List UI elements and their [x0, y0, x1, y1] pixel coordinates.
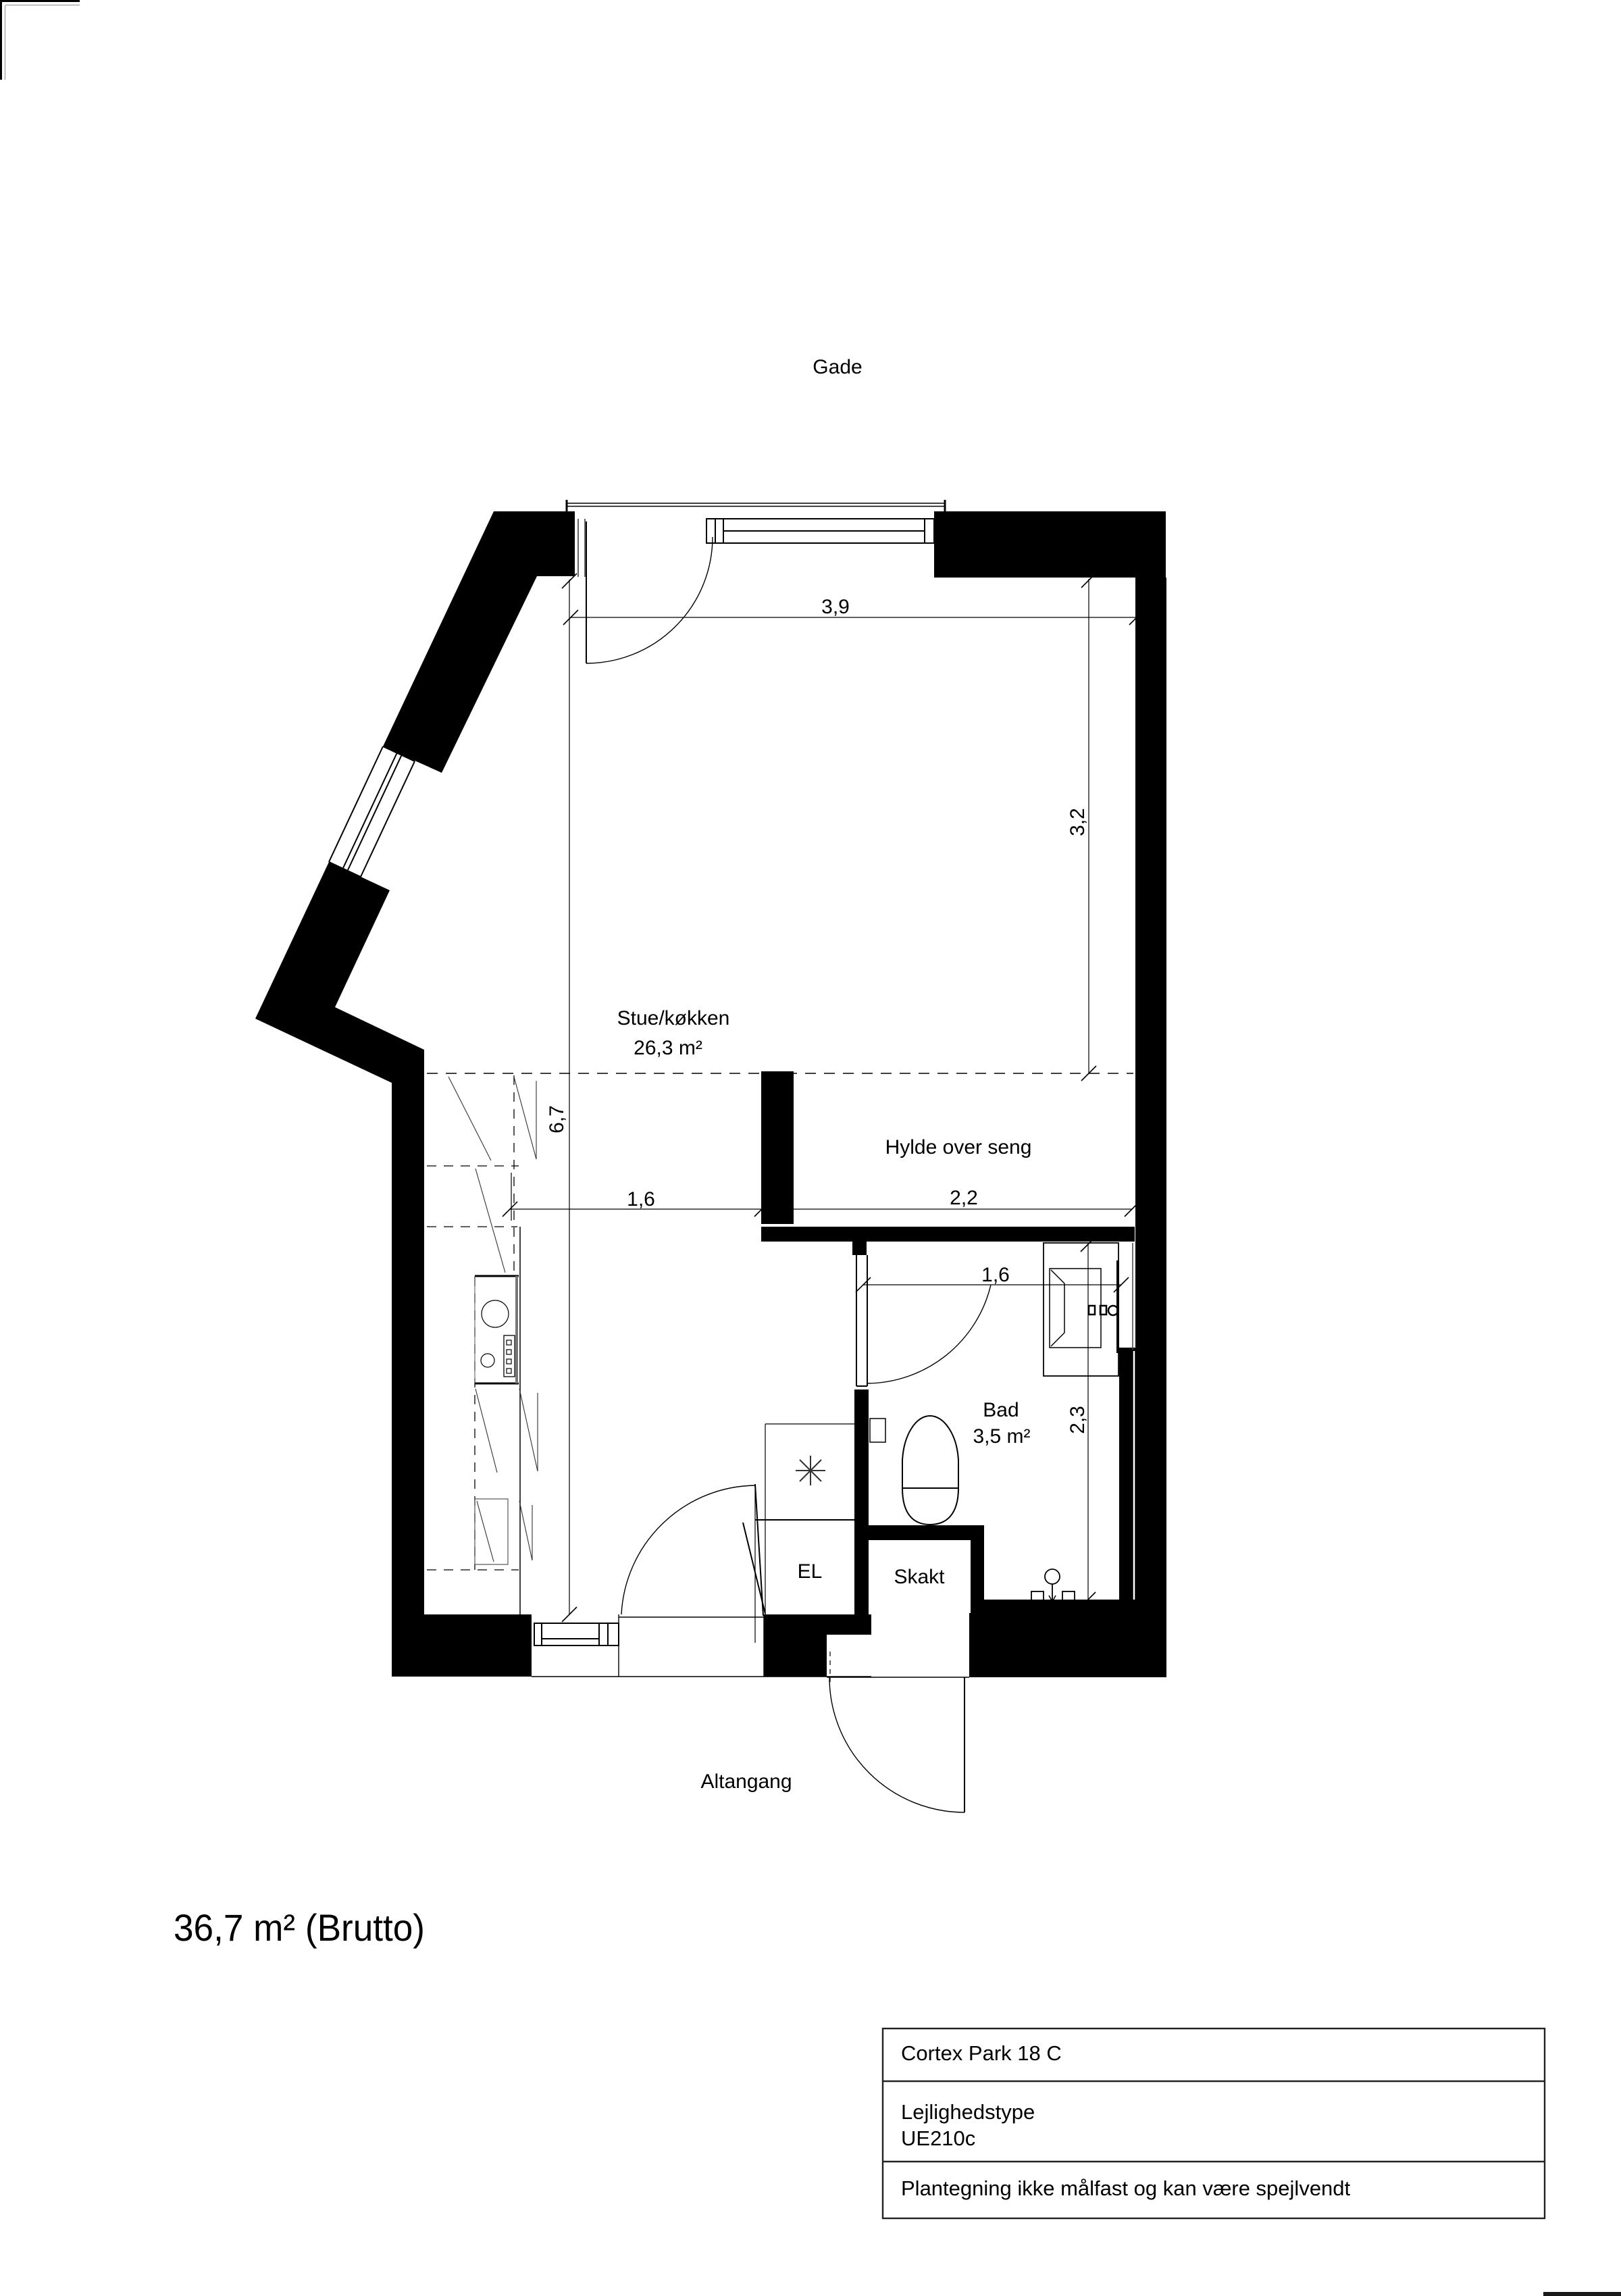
svg-text:Skakt: Skakt [894, 1566, 945, 1588]
svg-text:2,2: 2,2 [950, 1187, 978, 1209]
svg-text:2,3: 2,3 [1066, 1406, 1089, 1434]
svg-text:36,7 m² (Brutto): 36,7 m² (Brutto) [174, 1906, 425, 1949]
svg-text:26,3 m²: 26,3 m² [634, 1037, 702, 1059]
svg-text:UE210c: UE210c [901, 2126, 975, 2150]
svg-text:1,6: 1,6 [627, 1188, 655, 1210]
svg-text:3,9: 3,9 [821, 596, 850, 618]
svg-text:Stue/køkken: Stue/køkken [617, 1007, 730, 1029]
svg-text:6,7: 6,7 [546, 1105, 568, 1133]
svg-text:EL: EL [798, 1560, 823, 1583]
svg-text:Bad: Bad [983, 1399, 1019, 1421]
svg-text:Altangang: Altangang [700, 1770, 792, 1793]
svg-text:Lejlighedstype: Lejlighedstype [901, 2100, 1035, 2124]
svg-text:Hylde over seng: Hylde over seng [885, 1136, 1032, 1158]
svg-text:Gade: Gade [813, 356, 862, 378]
svg-text:1,6: 1,6 [981, 1264, 1010, 1286]
svg-text:3,2: 3,2 [1066, 808, 1089, 836]
svg-text:Cortex Park 18 C: Cortex Park 18 C [901, 2041, 1062, 2065]
svg-text:Plantegning ikke målfast og ka: Plantegning ikke målfast og kan være spe… [901, 2176, 1351, 2200]
svg-text:3,5 m²: 3,5 m² [973, 1425, 1030, 1448]
